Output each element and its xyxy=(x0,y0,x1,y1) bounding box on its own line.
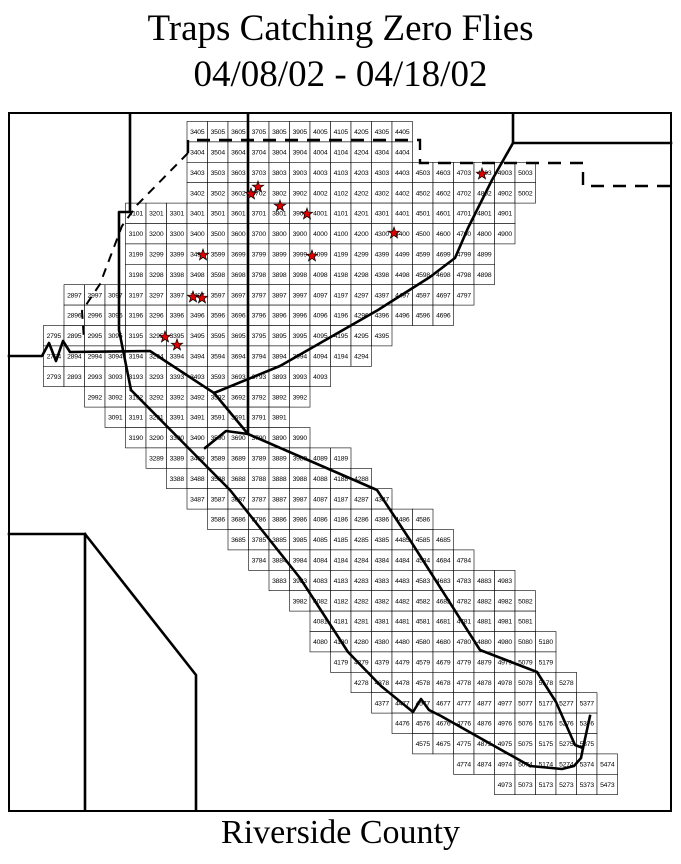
grid-cell-label: 4581 xyxy=(416,619,431,626)
grid-cell-label: 4396 xyxy=(375,313,390,320)
grid-cell-label: 4601 xyxy=(436,211,451,218)
grid-cell-label: 3694 xyxy=(231,354,246,361)
grid-cell-label: 4880 xyxy=(477,639,492,646)
grid-cell-label: 3905 xyxy=(293,129,308,136)
grid-cell-label: 3886 xyxy=(272,517,287,524)
grid-cell-label: 4083 xyxy=(313,578,328,585)
grid-cell-label: 3985 xyxy=(293,537,308,544)
grid-cell-label: 4973 xyxy=(498,782,513,789)
grid-cell-label: 3593 xyxy=(211,374,226,381)
grid-cell-label: 4596 xyxy=(416,313,431,320)
grid-cell-label: 4385 xyxy=(375,537,390,544)
grid-cell-label: 4205 xyxy=(354,129,369,136)
grid-cell-label: 4603 xyxy=(436,170,451,177)
grid-cell-label: 4975 xyxy=(498,741,513,748)
grid-cell-label: 4602 xyxy=(436,190,451,197)
grid-cell-label: 5175 xyxy=(539,741,554,748)
grid-cell-label: 3885 xyxy=(272,537,287,544)
grid-cell-label: 3982 xyxy=(293,598,308,605)
grid-cell-label: 3992 xyxy=(293,394,308,401)
grid-cell-label: 3904 xyxy=(293,150,308,157)
grid-cell-label: 4582 xyxy=(416,598,431,605)
grid-cell-label: 2894 xyxy=(67,354,82,361)
grid-cell-label: 3891 xyxy=(272,415,287,422)
grid-cell-label: 4878 xyxy=(477,680,492,687)
grid-cell-label: 4404 xyxy=(395,150,410,157)
grid-cell-label: 4182 xyxy=(334,598,349,605)
grid-cell-label: 3501 xyxy=(211,211,226,218)
grid-cell-label: 4500 xyxy=(416,231,431,238)
grid-cell-label: 3405 xyxy=(190,129,205,136)
grid-cell-label: 3399 xyxy=(170,252,185,259)
grid-cell-label: 3803 xyxy=(272,170,287,177)
grid-cell-label: 3297 xyxy=(149,292,164,299)
grid-cell-label: 2793 xyxy=(47,374,62,381)
grid-cell-label: 5073 xyxy=(518,782,533,789)
grid-cell-label: 4086 xyxy=(313,517,328,524)
grid-cell-label: 3490 xyxy=(190,435,205,442)
grid-cell-label: 3704 xyxy=(252,150,267,157)
grid-cell-label: 4186 xyxy=(334,517,349,524)
grid-cell-label: 4298 xyxy=(354,272,369,279)
grid-cell-label: 4702 xyxy=(457,190,472,197)
grid-cell-label: 3091 xyxy=(108,415,123,422)
grid-cell-label: 4282 xyxy=(354,598,369,605)
grid-cell-label: 4093 xyxy=(313,374,328,381)
county-label: Riverside County xyxy=(0,814,681,852)
grid-cell-label: 3798 xyxy=(252,272,267,279)
grid-cell-label: 5173 xyxy=(539,782,554,789)
grid-cell-label: 4881 xyxy=(477,619,492,626)
grid-cell-label: 3196 xyxy=(129,313,144,320)
grid-cell-label: 3690 xyxy=(231,435,246,442)
grid-cell-label: 4496 xyxy=(395,313,410,320)
grid-cell-label: 4978 xyxy=(498,680,513,687)
grid-cell-label: 4399 xyxy=(375,252,390,259)
grid-cell-label: 3795 xyxy=(252,333,267,340)
grid-cell-label: 5003 xyxy=(518,170,533,177)
grid-cell-label: 4780 xyxy=(457,639,472,646)
grid-cell-label: 4102 xyxy=(334,190,349,197)
grid-cell-label: 4294 xyxy=(354,354,369,361)
grid-cell-label: 4800 xyxy=(477,231,492,238)
grid-cell-label: 3801 xyxy=(272,211,287,218)
grid-cell-label: 4382 xyxy=(375,598,390,605)
grid-cell-label: 4983 xyxy=(498,578,513,585)
grid-cell-label: 3398 xyxy=(170,272,185,279)
grid-cell-label: 3190 xyxy=(129,435,144,442)
grid-cell-label: 4084 xyxy=(313,558,328,565)
grid-cell-label: 3494 xyxy=(190,354,205,361)
grid-cell-label: 3096 xyxy=(108,313,123,320)
grid-cell-label: 3988 xyxy=(293,476,308,483)
grid-cell-label: 4585 xyxy=(416,537,431,544)
grid-cell-label: 3491 xyxy=(190,415,205,422)
grid-cell-label: 4278 xyxy=(354,680,369,687)
grid-cell-label: 4479 xyxy=(395,660,410,667)
grid-cell-label: 3996 xyxy=(293,313,308,320)
grid-cell-label: 3300 xyxy=(170,231,185,238)
grid-cell-label: 2895 xyxy=(67,333,82,340)
grid-cell-label: 4287 xyxy=(354,496,369,503)
grid-cell-label: 3487 xyxy=(190,496,205,503)
grid-cell-label: 4087 xyxy=(313,496,328,503)
grid-cell-label: 5277 xyxy=(559,700,574,707)
grid-cell-label: 4503 xyxy=(416,170,431,177)
grid-cell-label: 4899 xyxy=(477,252,492,259)
grid-cell-label: 3195 xyxy=(129,333,144,340)
grid-cell-label: 3097 xyxy=(108,292,123,299)
grid-cell-label: 3887 xyxy=(272,496,287,503)
grid-cell-label: 3492 xyxy=(190,394,205,401)
grid-cell-label: 4185 xyxy=(334,537,349,544)
grid-cell-label: 3894 xyxy=(272,354,287,361)
grid-cell-label: 4181 xyxy=(334,619,349,626)
grid-cell-label: 2897 xyxy=(67,292,82,299)
grid-cell-label: 4498 xyxy=(395,272,410,279)
grid-cell-label: 4299 xyxy=(354,252,369,259)
grid-cell-label: 4801 xyxy=(477,211,492,218)
grid-cell-label: 4088 xyxy=(313,476,328,483)
grid-cell-label: 3890 xyxy=(272,435,287,442)
grid-cell-label: 4202 xyxy=(354,190,369,197)
grid-cell-label: 3502 xyxy=(211,190,226,197)
grid-cell-label: 4600 xyxy=(436,231,451,238)
grid-cell-label: 4774 xyxy=(457,762,472,769)
grid-cell-label: 4395 xyxy=(375,333,390,340)
grid-cell-label: 4797 xyxy=(457,292,472,299)
grid-cell-label: 4779 xyxy=(457,660,472,667)
grid-cell-label: 3402 xyxy=(190,190,205,197)
grid-cell-label: 4187 xyxy=(334,496,349,503)
grid-cell-label: 4777 xyxy=(457,700,472,707)
grid-cell-label: 4381 xyxy=(375,619,390,626)
grid-cell-label: 5179 xyxy=(539,660,554,667)
grid-cell-label: 5473 xyxy=(600,782,615,789)
grid-cell-label: 3805 xyxy=(272,129,287,136)
grid-cell-label: 3892 xyxy=(272,394,287,401)
grid-cell-label: 3791 xyxy=(252,415,267,422)
grid-cell-label: 3596 xyxy=(211,313,226,320)
grid-cell-label: 3396 xyxy=(170,313,185,320)
grid-cell-label: 4281 xyxy=(354,619,369,626)
grid-cell-label: 3589 xyxy=(211,456,226,463)
grid-cell-label: 2896 xyxy=(67,313,82,320)
grid-cell-label: 4103 xyxy=(334,170,349,177)
grid-cell-label: 4583 xyxy=(416,578,431,585)
grid-cell-label: 5275 xyxy=(559,741,574,748)
grid-cell-label: 3298 xyxy=(149,272,164,279)
grid-cell-label: 4575 xyxy=(416,741,431,748)
grid-cell-label: 3191 xyxy=(129,415,144,422)
grid-cell-label: 4204 xyxy=(354,150,369,157)
grid-cell-label: 3602 xyxy=(231,190,246,197)
grid-cell-label: 5474 xyxy=(600,762,615,769)
grid-cell-label: 3290 xyxy=(149,435,164,442)
grid-cell-label: 3796 xyxy=(252,313,267,320)
grid-cell-label: 4184 xyxy=(334,558,349,565)
grid-cell-label: 5081 xyxy=(518,619,533,626)
grid-cell-label: 4179 xyxy=(334,660,349,667)
grid-cell-label: 3597 xyxy=(211,292,226,299)
grid-cell-label: 4977 xyxy=(498,700,513,707)
grid-cell-label: 3092 xyxy=(108,394,123,401)
grid-cell-label: 4678 xyxy=(436,680,451,687)
trap-grid: 3405350536053705380539054005410542054305… xyxy=(44,122,618,795)
grid-cell-label: 4295 xyxy=(354,333,369,340)
grid-cell-label: 3394 xyxy=(170,354,185,361)
grid-cell-label: 3692 xyxy=(231,394,246,401)
grid-cell-label: 4097 xyxy=(313,292,328,299)
grid-cell-label: 3504 xyxy=(211,150,226,157)
grid-cell-label: 3688 xyxy=(231,476,246,483)
grid-cell-label: 2994 xyxy=(88,354,103,361)
grid-cell-label: 4502 xyxy=(416,190,431,197)
grid-cell-label: 3200 xyxy=(149,231,164,238)
grid-cell-label: 4483 xyxy=(395,578,410,585)
grid-cell-label: 3896 xyxy=(272,313,287,320)
page: Traps Catching Zero Flies 04/08/02 - 04/… xyxy=(0,0,681,864)
grid-cell-label: 4576 xyxy=(416,721,431,728)
grid-cell-label: 3194 xyxy=(129,354,144,361)
grid-cell-label: 4098 xyxy=(313,272,328,279)
grid-cell-label: 3686 xyxy=(231,517,246,524)
grid-cell-label: 3093 xyxy=(108,374,123,381)
riverside-trap-map: 3405350536053705380539054005410542054305… xyxy=(0,0,681,864)
grid-cell-label: 4874 xyxy=(477,762,492,769)
grid-cell-label: 4203 xyxy=(354,170,369,177)
grid-cell-label: 3401 xyxy=(190,211,205,218)
grid-cell-label: 3701 xyxy=(252,211,267,218)
grid-cell-label: 4580 xyxy=(416,639,431,646)
grid-cell-label: 4976 xyxy=(498,721,513,728)
grid-cell-label: 4877 xyxy=(477,700,492,707)
grid-cell-label: 3689 xyxy=(231,456,246,463)
grid-cell-label: 3388 xyxy=(170,476,185,483)
grid-cell-label: 4105 xyxy=(334,129,349,136)
grid-cell-label: 5180 xyxy=(539,639,554,646)
grid-cell-label: 4300 xyxy=(375,231,390,238)
grid-cell-label: 3802 xyxy=(272,190,287,197)
grid-cell-label: 3403 xyxy=(190,170,205,177)
grid-cell-label: 4981 xyxy=(498,619,513,626)
grid-cell-label: 3902 xyxy=(293,190,308,197)
grid-cell-label: 4402 xyxy=(395,190,410,197)
grid-cell-label: 3397 xyxy=(170,292,185,299)
grid-cell-label: 3804 xyxy=(272,150,287,157)
grid-cell-label: 5082 xyxy=(518,598,533,605)
grid-cell-label: 4478 xyxy=(395,680,410,687)
grid-cell-label: 4798 xyxy=(457,272,472,279)
grid-cell-label: 3603 xyxy=(231,170,246,177)
grid-cell-label: 3696 xyxy=(231,313,246,320)
grid-cell-label: 4305 xyxy=(375,129,390,136)
grid-cell-label: 5080 xyxy=(518,639,533,646)
grid-cell-label: 3998 xyxy=(293,272,308,279)
grid-cell-label: 2993 xyxy=(88,374,103,381)
grid-cell-label: 3400 xyxy=(190,231,205,238)
grid-cell-label: 3794 xyxy=(252,354,267,361)
grid-cell-label: 4902 xyxy=(498,190,513,197)
grid-cell-label: 3393 xyxy=(170,374,185,381)
grid-cell-label: 4286 xyxy=(354,517,369,524)
grid-cell-label: 5373 xyxy=(580,782,595,789)
grid-cell-label: 4403 xyxy=(395,170,410,177)
grid-cell-label: 3601 xyxy=(231,211,246,218)
grid-cell-label: 3595 xyxy=(211,333,226,340)
grid-cell-label: 4782 xyxy=(457,598,472,605)
grid-cell-label: 3700 xyxy=(252,231,267,238)
grid-cell-label: 3391 xyxy=(170,415,185,422)
grid-cell-label: 3296 xyxy=(149,313,164,320)
grid-cell-label: 4703 xyxy=(457,170,472,177)
grid-cell-label: 4201 xyxy=(354,211,369,218)
grid-cell-label: 3999 xyxy=(293,252,308,259)
grid-cell-label: 4004 xyxy=(313,150,328,157)
grid-cell-label: 4089 xyxy=(313,456,328,463)
grid-cell-label: 2795 xyxy=(47,333,62,340)
grid-cell-label: 3898 xyxy=(272,272,287,279)
grid-cell-label: 4903 xyxy=(498,170,513,177)
grid-cell-label: 3703 xyxy=(252,170,267,177)
boundary-lower-left-shape xyxy=(9,534,196,810)
grid-cell-label: 4974 xyxy=(498,762,513,769)
grid-cell-label: 5002 xyxy=(518,190,533,197)
grid-cell-label: 4405 xyxy=(395,129,410,136)
grid-cell-label: 4675 xyxy=(436,741,451,748)
grid-cell-label: 4680 xyxy=(436,639,451,646)
grid-cell-label: 4901 xyxy=(498,211,513,218)
grid-cell-label: 3903 xyxy=(293,170,308,177)
grid-cell-label: 3389 xyxy=(170,456,185,463)
grid-cell-label: 3293 xyxy=(149,374,164,381)
grid-cell-label: 3685 xyxy=(231,537,246,544)
grid-cell-label: 4898 xyxy=(477,272,492,279)
grid-cell-label: 4284 xyxy=(354,558,369,565)
grid-cell-label: 3785 xyxy=(252,537,267,544)
grid-cell-label: 4799 xyxy=(457,252,472,259)
grid-cell-label: 4199 xyxy=(334,252,349,259)
grid-cell-label: 4397 xyxy=(375,292,390,299)
grid-cell-label: 3198 xyxy=(129,272,144,279)
grid-cell-label: 4297 xyxy=(354,292,369,299)
grid-cell-label: 4701 xyxy=(457,211,472,218)
grid-cell-label: 4383 xyxy=(375,578,390,585)
grid-cell-label: 4379 xyxy=(375,660,390,667)
grid-cell-label: 5374 xyxy=(580,762,595,769)
grid-cell-label: 4003 xyxy=(313,170,328,177)
grid-cell-label: 3488 xyxy=(190,476,205,483)
grid-cell-label: 4501 xyxy=(416,211,431,218)
grid-cell-label: 3496 xyxy=(190,313,205,320)
grid-cell-label: 3495 xyxy=(190,333,205,340)
grid-cell-label: 4194 xyxy=(334,354,349,361)
grid-cell-label: 2893 xyxy=(67,374,82,381)
grid-cell-label: 4579 xyxy=(416,660,431,667)
grid-cell-label: 4104 xyxy=(334,150,349,157)
grid-cell-label: 4775 xyxy=(457,741,472,748)
grid-cell-label: 3993 xyxy=(293,374,308,381)
grid-cell-label: 3094 xyxy=(108,354,123,361)
grid-cell-label: 3895 xyxy=(272,333,287,340)
grid-cell-label: 3503 xyxy=(211,170,226,177)
grid-cell-label: 5075 xyxy=(518,741,533,748)
grid-cell-label: 4401 xyxy=(395,211,410,218)
grid-cell-label: 3698 xyxy=(231,272,246,279)
grid-cell-label: 4879 xyxy=(477,660,492,667)
grid-cell-label: 4198 xyxy=(334,272,349,279)
grid-cell-label: 3604 xyxy=(231,150,246,157)
grid-cell-label: 5273 xyxy=(559,782,574,789)
grid-cell-label: 4476 xyxy=(395,721,410,728)
grid-cell-label: 4876 xyxy=(477,721,492,728)
grid-cell-label: 4189 xyxy=(334,456,349,463)
grid-cell-label: 3586 xyxy=(211,517,226,524)
grid-cell-label: 5377 xyxy=(580,700,595,707)
grid-cell-label: 4699 xyxy=(436,252,451,259)
grid-cell-label: 3301 xyxy=(170,211,185,218)
grid-cell-label: 2992 xyxy=(88,394,103,401)
grid-cell-label: 3292 xyxy=(149,394,164,401)
grid-cell-label: 5076 xyxy=(518,721,533,728)
grid-cell-label: 3100 xyxy=(129,231,144,238)
grid-cell-label: 3599 xyxy=(211,252,226,259)
grid-cell-label: 4197 xyxy=(334,292,349,299)
grid-cell-label: 4883 xyxy=(477,578,492,585)
grid-cell-label: 4499 xyxy=(395,252,410,259)
grid-cell-label: 5177 xyxy=(539,700,554,707)
grid-cell-label: 4303 xyxy=(375,170,390,177)
grid-cell-label: 3888 xyxy=(272,476,287,483)
boundary-northeast-corner xyxy=(513,114,671,143)
grid-cell-label: 3986 xyxy=(293,517,308,524)
grid-cell-label: 3591 xyxy=(211,415,226,422)
grid-cell-label: 3889 xyxy=(272,456,287,463)
grid-cell-label: 4882 xyxy=(477,598,492,605)
grid-cell-label: 4285 xyxy=(354,537,369,544)
grid-cell-label: 3987 xyxy=(293,496,308,503)
grid-cell-label: 4384 xyxy=(375,558,390,565)
grid-cell-label: 4482 xyxy=(395,598,410,605)
grid-cell-label: 4200 xyxy=(354,231,369,238)
grid-cell-label: 4380 xyxy=(375,639,390,646)
grid-cell-label: 3199 xyxy=(129,252,144,259)
grid-cell-label: 3897 xyxy=(272,292,287,299)
grid-cell-label: 4398 xyxy=(375,272,390,279)
grid-cell-label: 4080 xyxy=(313,639,328,646)
grid-cell-label: 3498 xyxy=(190,272,205,279)
grid-cell-label: 4698 xyxy=(436,272,451,279)
grid-cell-label: 4599 xyxy=(416,252,431,259)
grid-cell-label: 4778 xyxy=(457,680,472,687)
grid-cell-label: 5078 xyxy=(518,680,533,687)
grid-cell-label: 3201 xyxy=(149,211,164,218)
grid-cell-label: 4001 xyxy=(313,211,328,218)
grid-cell-label: 3587 xyxy=(211,496,226,503)
grid-cell-label: 4101 xyxy=(334,211,349,218)
grid-cell-label: 3705 xyxy=(252,129,267,136)
grid-cell-label: 3695 xyxy=(231,333,246,340)
grid-cell-label: 3594 xyxy=(211,354,226,361)
grid-cell-label: 4386 xyxy=(375,517,390,524)
grid-cell-label: 4085 xyxy=(313,537,328,544)
grid-cell-label: 3984 xyxy=(293,558,308,565)
grid-cell-label: 4196 xyxy=(334,313,349,320)
grid-cell-label: 4304 xyxy=(375,150,390,157)
grid-cell-label: 3789 xyxy=(252,456,267,463)
grid-cell-label: 4783 xyxy=(457,578,472,585)
grid-cell-label: 3784 xyxy=(252,558,267,565)
